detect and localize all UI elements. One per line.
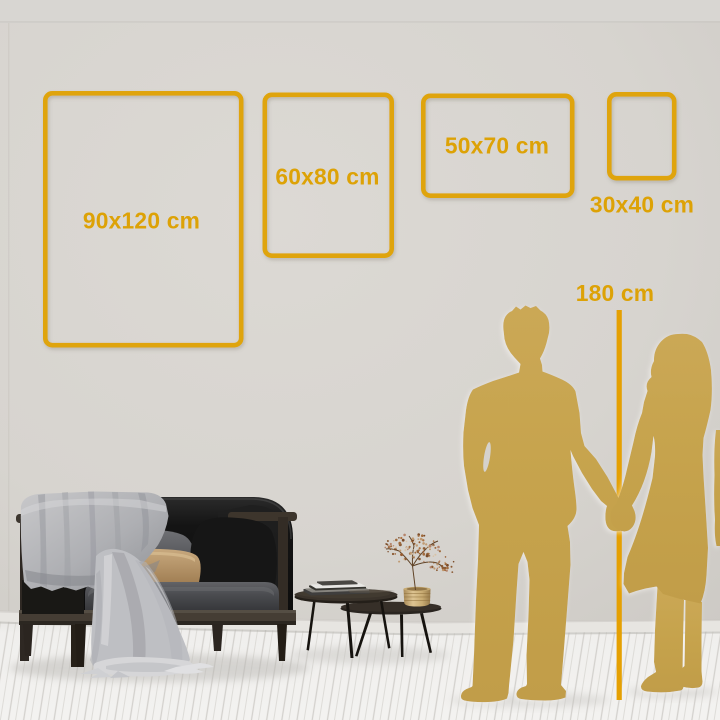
svg-text:90x120 cm: 90x120 cm [83,208,200,234]
svg-text:60x80 cm: 60x80 cm [275,164,379,190]
svg-text:50x70 cm: 50x70 cm [445,133,549,159]
svg-text:30x40 cm: 30x40 cm [590,192,694,218]
svg-text:180 cm: 180 cm [576,280,655,306]
